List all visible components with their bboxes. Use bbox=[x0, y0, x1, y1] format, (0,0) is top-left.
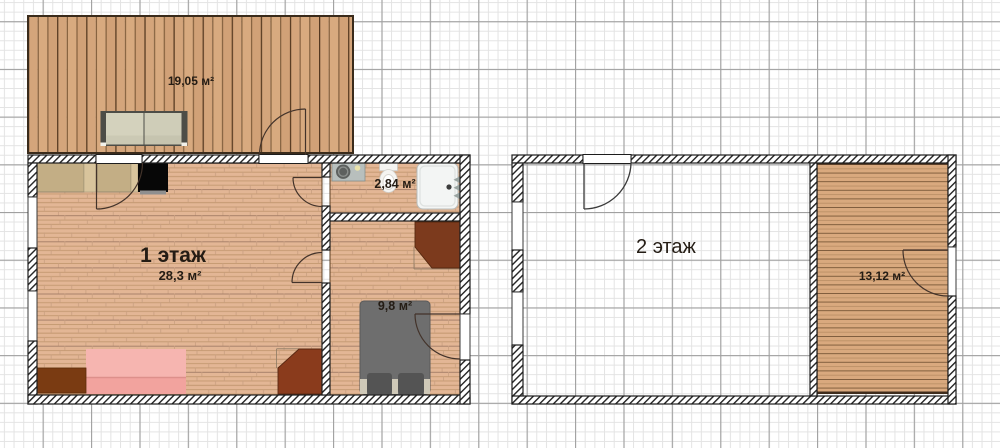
svg-text:19,05 м²: 19,05 м² bbox=[168, 74, 214, 88]
svg-text:9,8 м²: 9,8 м² bbox=[378, 299, 412, 313]
svg-text:2 этаж: 2 этаж bbox=[636, 236, 697, 258]
svg-text:2,84 м²: 2,84 м² bbox=[374, 177, 415, 191]
svg-text:28,3 м²: 28,3 м² bbox=[159, 268, 203, 283]
svg-text:1 этаж: 1 этаж bbox=[140, 244, 207, 267]
svg-text:13,12 м²: 13,12 м² bbox=[859, 269, 905, 283]
